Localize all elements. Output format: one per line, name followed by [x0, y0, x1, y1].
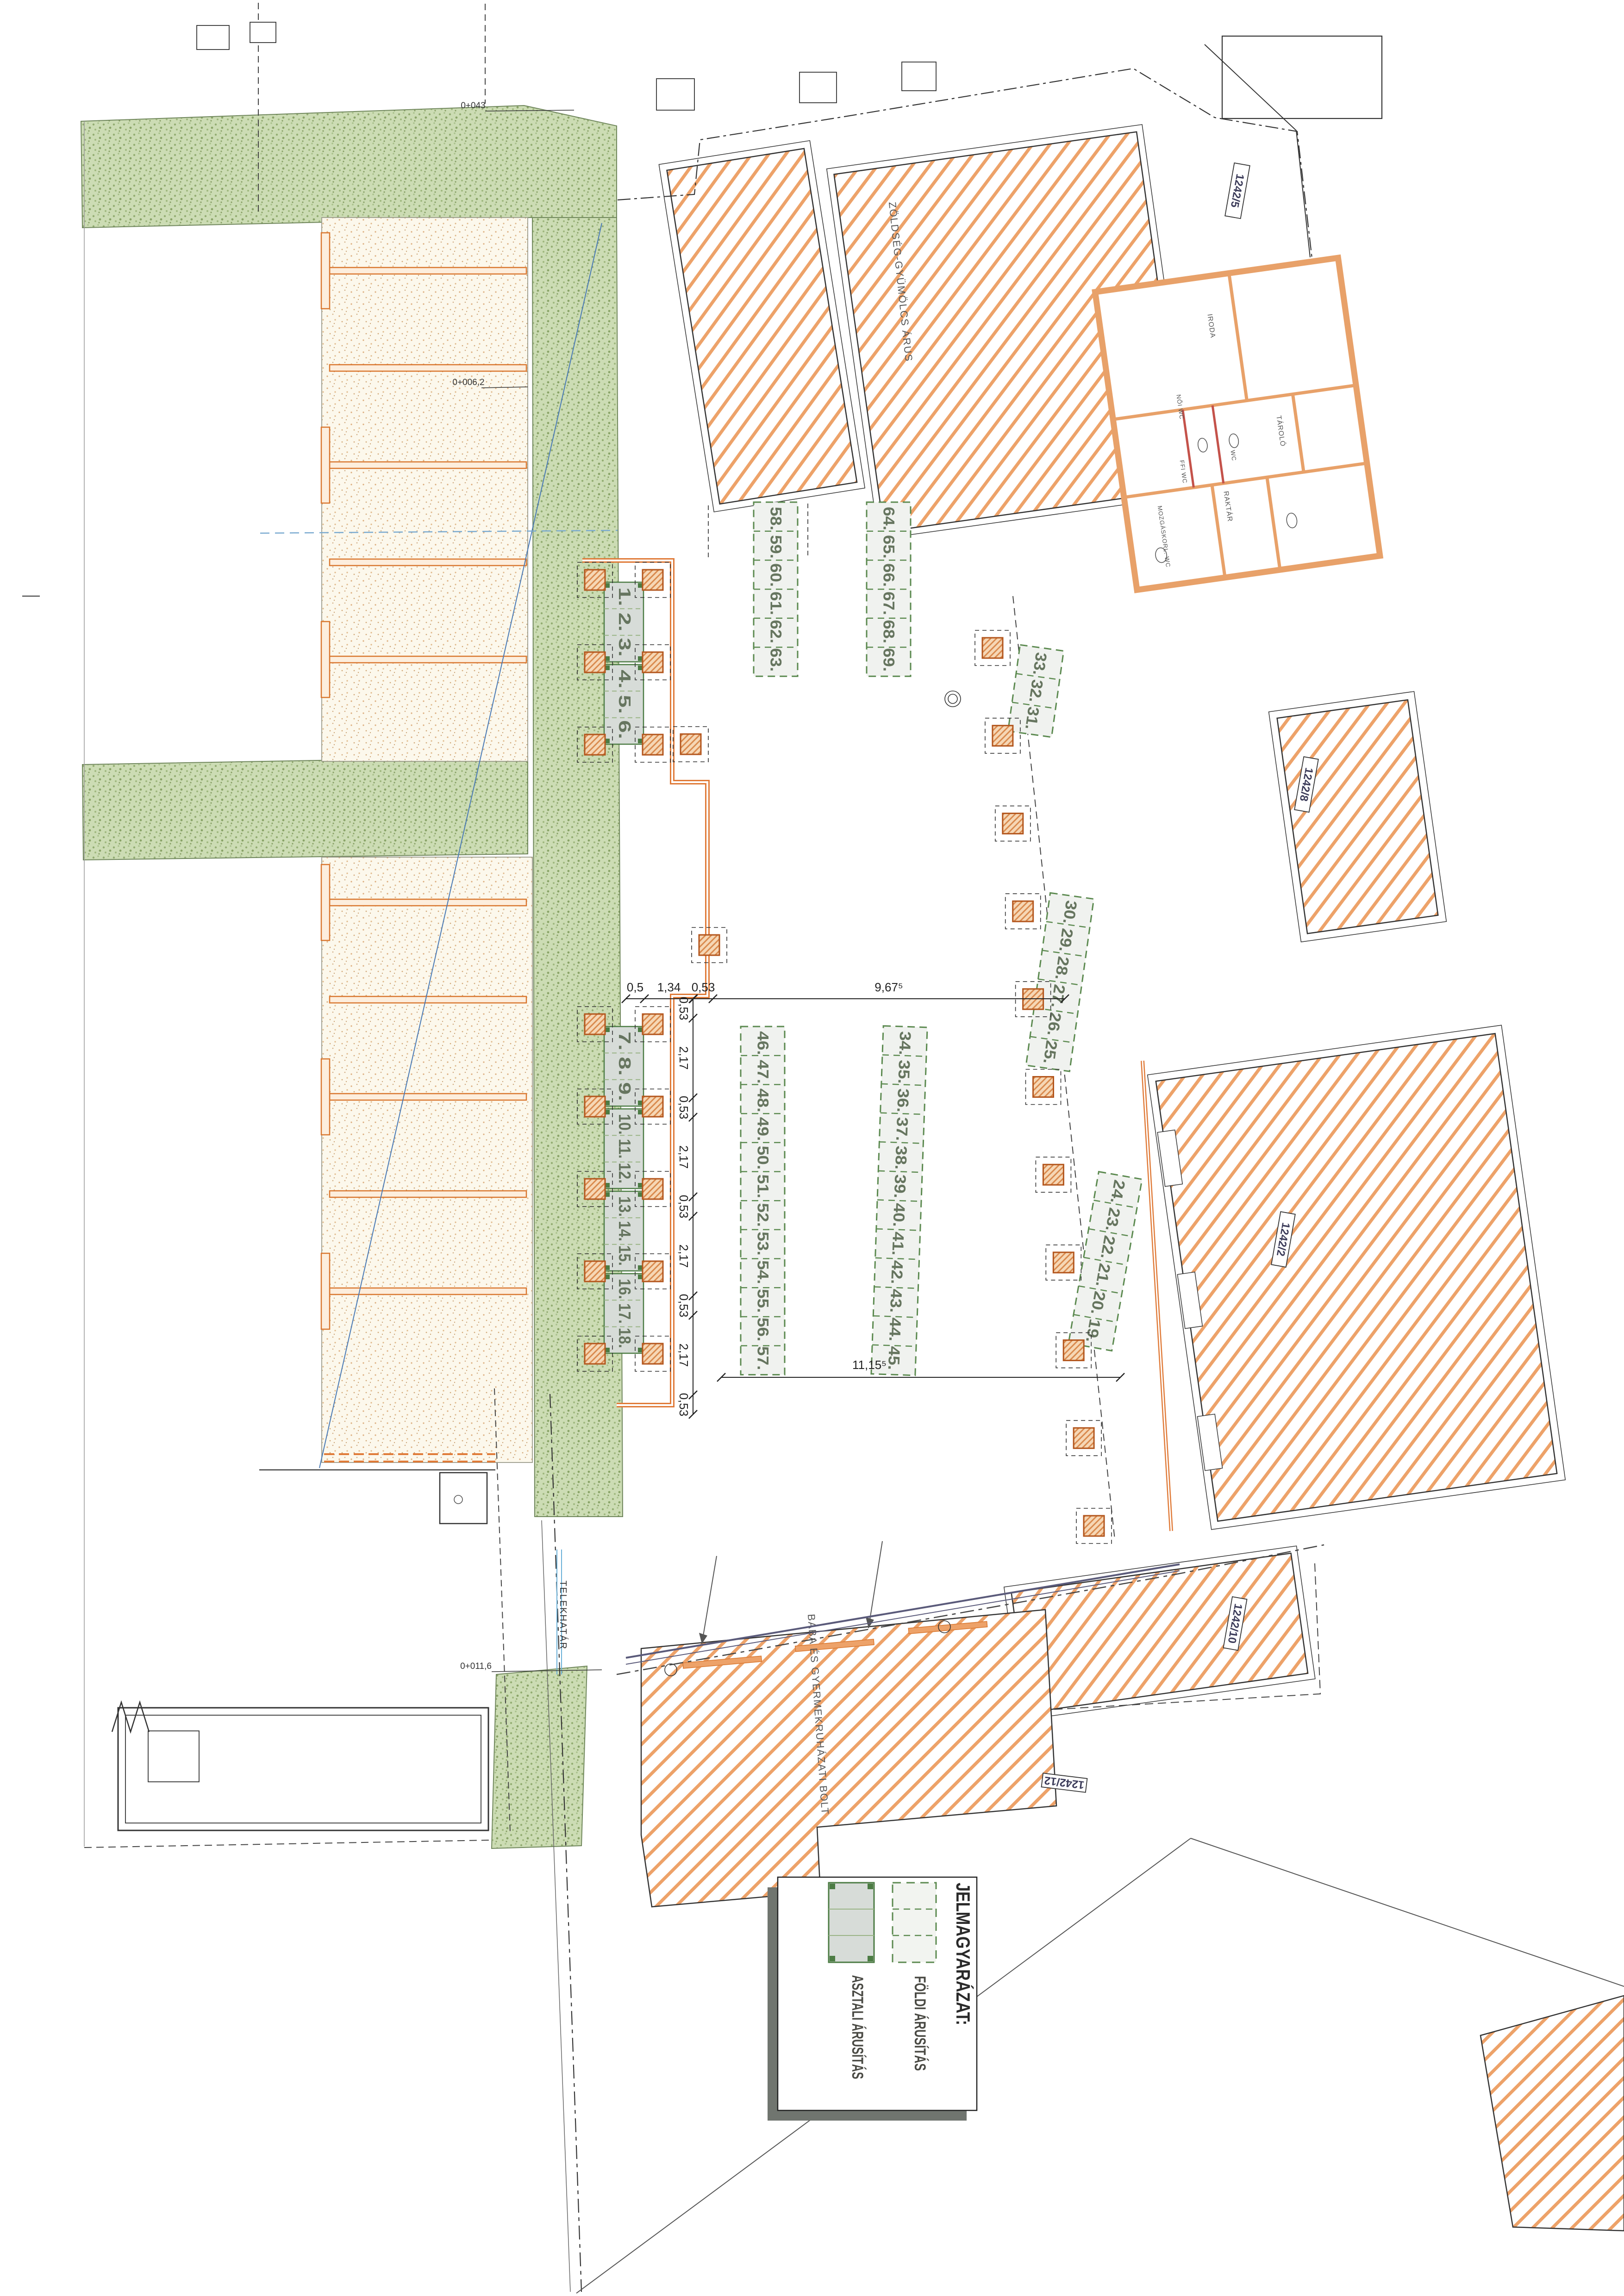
market-table: 1. 2. 3. [604, 582, 643, 662]
chain-dim-label: 0,53 [677, 1294, 691, 1318]
market-table: 10. 11. 12. [604, 1109, 643, 1188]
table-numbers: 16. 17. 18. [615, 1279, 634, 1348]
chain-dim-label: 0,53 [677, 1195, 691, 1219]
table-numbers: 4. 5. 6. [615, 670, 634, 739]
dim-967: 9,67⁵ [874, 980, 903, 994]
boundary-label: TELEKHATÁR [558, 1580, 568, 1650]
outbuilding [440, 1473, 487, 1524]
roof-beam [330, 365, 526, 371]
table-numbers: 7. 8. 9. [615, 1032, 634, 1101]
station-0: 0+043 [461, 101, 485, 111]
building-1242-2 [1148, 1025, 1566, 1530]
dimension-chain-labels: 0,532,170,532,170,532,170,532,170,53 [677, 997, 691, 1417]
chain-dim-label: 0,53 [677, 997, 691, 1020]
legend-symbol-foldi [893, 1883, 936, 1962]
ground-area-numbers: 58. 59. 60. 61. 62. 63. [767, 507, 785, 672]
chain-dim-label: 0,53 [677, 1096, 691, 1120]
market-table: 7. 8. 9. [604, 1027, 643, 1106]
chain-dim-label: 2,17 [677, 1344, 691, 1367]
dim-1115: 11,15⁵ [852, 1358, 887, 1372]
dim-134: 1,34 [657, 980, 681, 994]
market-table: 16. 17. 18. [604, 1274, 643, 1353]
table-numbers: 1. 2. 3. [615, 587, 634, 657]
legend: JELMAGYARÁZAT: FÖLDI ÁRUSÍTÁS ASZTALI ÁR… [768, 1877, 977, 2121]
table-numbers: 13. 14. 15. [615, 1196, 634, 1266]
chain-dim-label: 2,17 [677, 1244, 691, 1268]
market-table: 13. 14. 15. [604, 1191, 643, 1271]
chain-dim-label: 0,53 [677, 1393, 691, 1417]
ground-area-numbers: 46. 47. 48. 49. 50. 51. 52. 53. 54. 55. … [754, 1031, 772, 1370]
bottom-left-building [112, 1702, 488, 1830]
station-2: 0+011,6 [460, 1661, 492, 1671]
chain-dim-label: 2,17 [677, 1145, 691, 1169]
legend-title: JELMAGYARÁZAT: [952, 1883, 974, 2025]
dim-05: 0,5 [627, 980, 643, 994]
service-block [1095, 258, 1380, 590]
legend-symbol-asztali [829, 1883, 874, 1962]
ground-area: 58. 59. 60. 61. 62. 63. [754, 502, 798, 676]
chain-dim-label: 2,17 [677, 1046, 691, 1070]
roof-beam [330, 559, 526, 566]
roof-beam [330, 1191, 526, 1197]
ground-area-numbers: 64. 65. 66. 67. 68. 69. [880, 507, 898, 672]
station-1: 0+006,2 [452, 378, 484, 387]
ground-area: 64. 65. 66. 67. 68. 69. [867, 502, 911, 676]
dim-053: 0,53 [692, 980, 715, 994]
table-numbers: 10. 11. 12. [615, 1114, 634, 1183]
market-table: 4. 5. 6. [604, 665, 643, 744]
legend-label-foldi: FÖLDI ÁRUSÍTÁS [911, 1976, 929, 2071]
ground-area: 46. 47. 48. 49. 50. 51. 52. 53. 54. 55. … [741, 1027, 785, 1375]
roof-beam [330, 996, 526, 1003]
legend-label-asztali: ASZTALI ÁRUSÍTÁS [849, 1975, 866, 2079]
legend-box [778, 1877, 977, 2110]
floor-plan-canvas: ZÖLDSÉG-GYÜMÖLCS ÁRUS IRODA TÁROLÓ WC NŐ… [0, 0, 1624, 2296]
